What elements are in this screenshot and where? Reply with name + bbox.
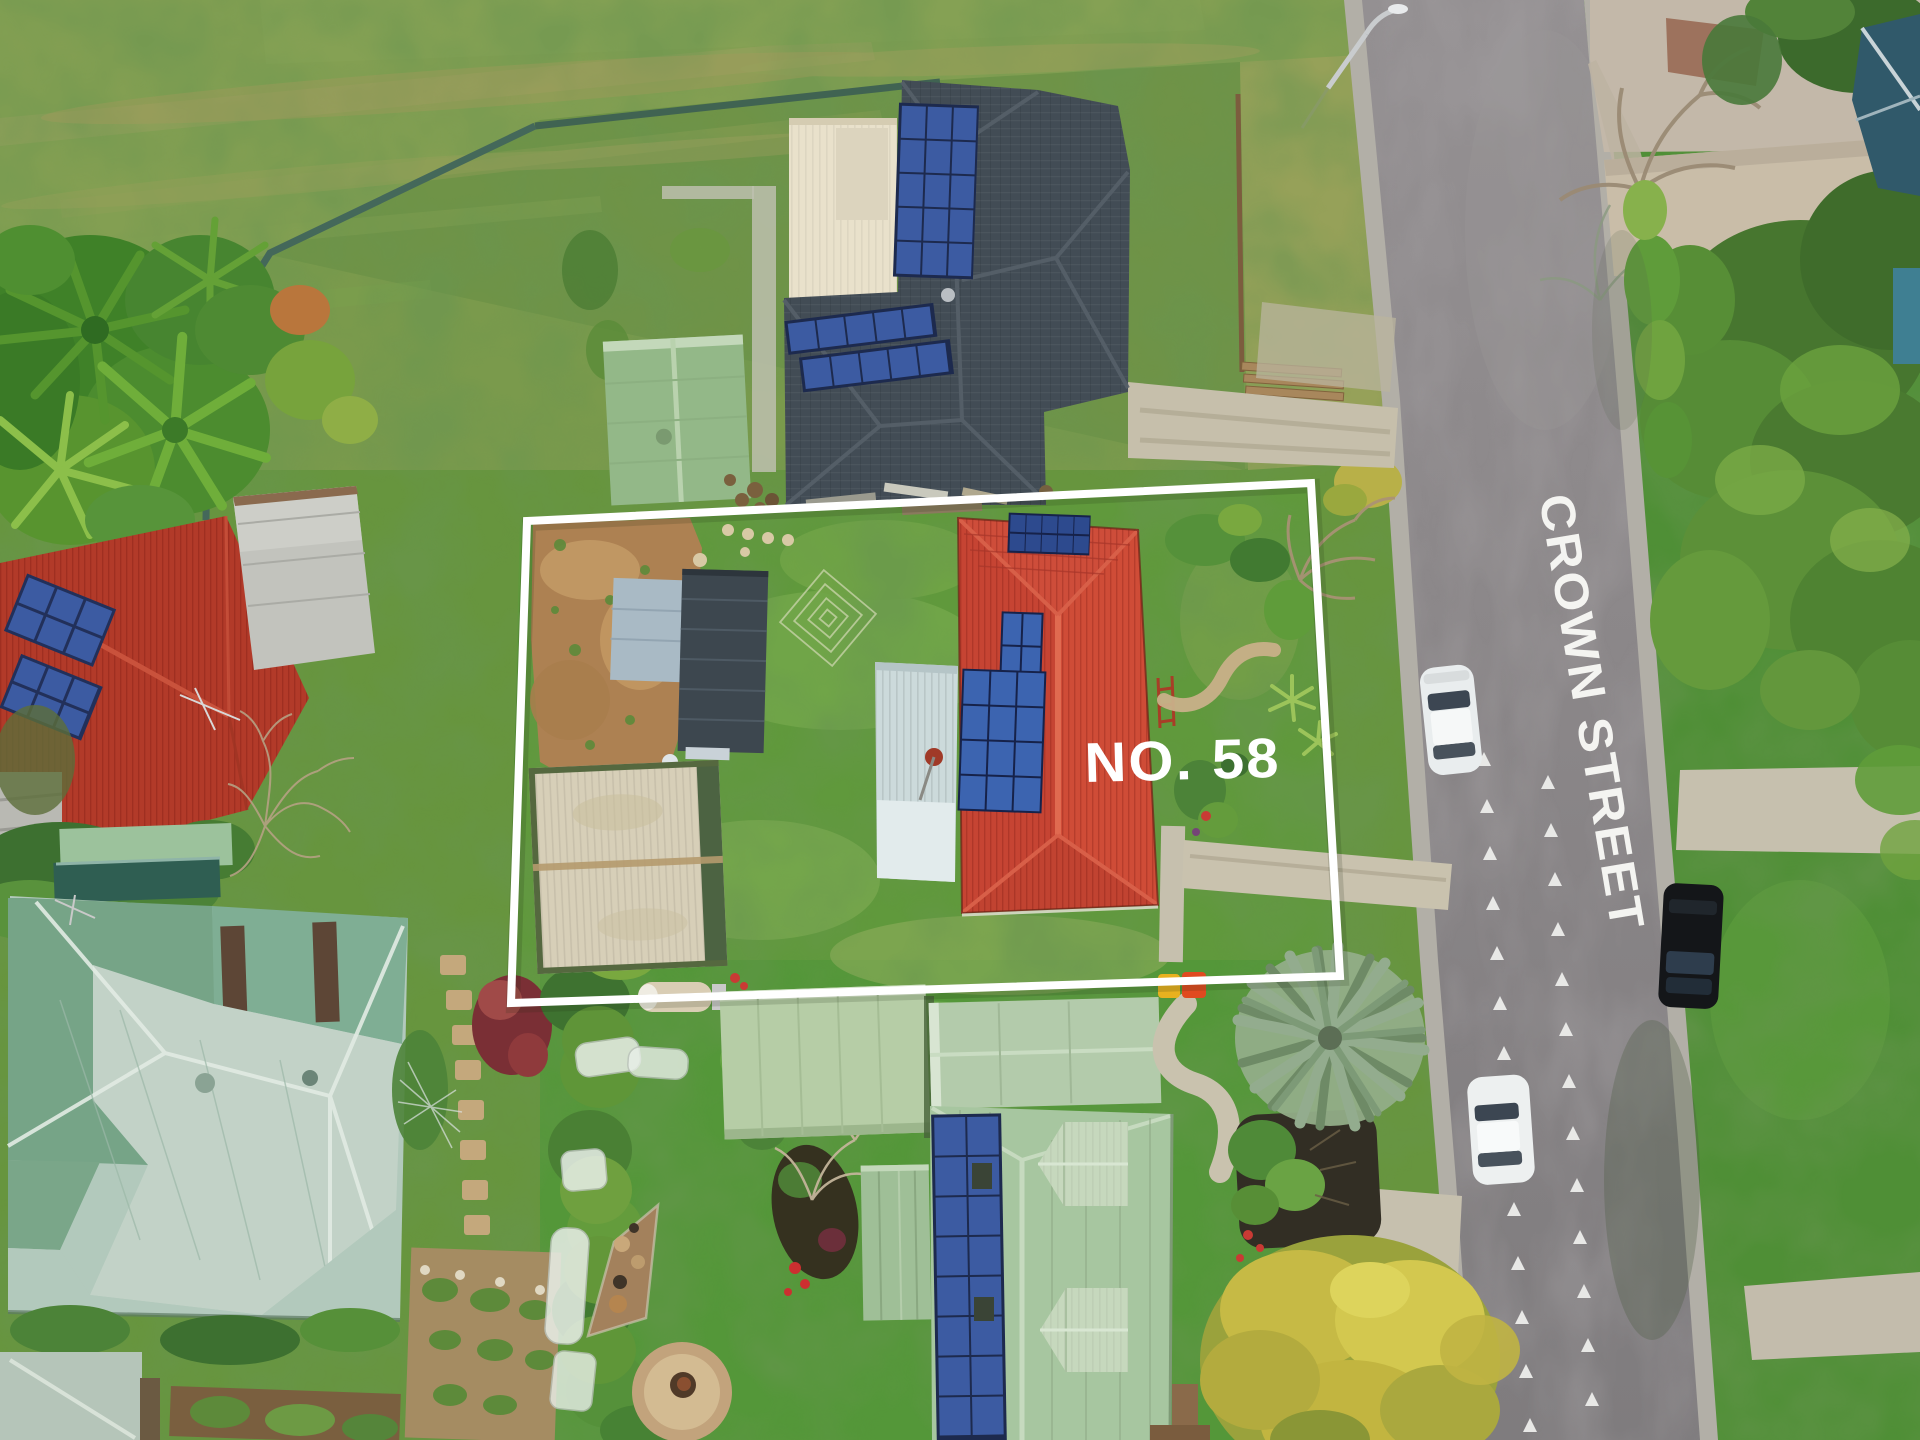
svg-text:NO. 58: NO. 58 bbox=[1084, 726, 1282, 794]
